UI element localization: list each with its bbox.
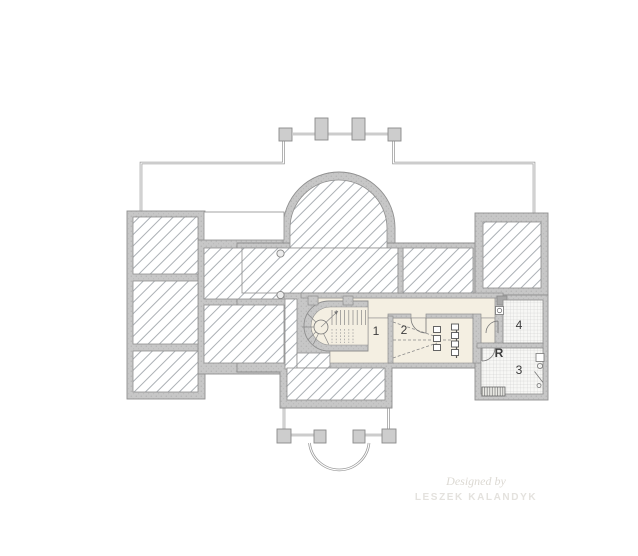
corridor-north-wall: [301, 293, 503, 298]
room-1-label: 1: [373, 325, 380, 337]
room3-north-wall: [477, 343, 543, 348]
central-cell-east: [403, 248, 473, 293]
below-stair-cell: [297, 353, 330, 368]
room3-sink: [536, 354, 544, 362]
room-2-label: 2: [401, 324, 408, 336]
watermark-name-line: LESZEK KALANDYK: [398, 492, 554, 503]
room4-fixture: [496, 307, 504, 315]
stair-pilaster-2: [343, 296, 353, 305]
room-4-label: 4: [516, 319, 523, 331]
top-portico-pillars: [279, 118, 401, 141]
room-3-label: 3: [516, 364, 523, 376]
chairs-left: [434, 327, 441, 351]
watermark-script-line: Designed by: [398, 474, 554, 489]
floor-plan-canvas: 1 2 4 R 3 Designed by LESZEK KALANDYK: [0, 0, 638, 556]
room2-north-wall-b: [426, 314, 473, 318]
portico-arc: [310, 443, 370, 470]
column-2: [277, 291, 284, 298]
top-right-cell: [483, 222, 541, 288]
left-wing-cell-1: [133, 217, 198, 274]
room4-tile-floor: [503, 300, 543, 343]
designer-watermark: Designed by LESZEK KALANDYK: [398, 474, 554, 503]
left-wing-cell-2: [133, 281, 198, 344]
central-strip: [285, 299, 297, 369]
column-1: [277, 250, 284, 257]
room-r-label: R: [495, 347, 504, 359]
central-cell-west: [242, 248, 398, 293]
open-terrace-cell: [204, 212, 284, 240]
terrace-divider-wall: [398, 248, 403, 293]
mid-left-cell-2: [204, 305, 284, 363]
room3-radiator: [482, 387, 505, 396]
room2-west-wall: [388, 316, 393, 363]
room2-east-wall: [473, 314, 481, 363]
stair-pilaster-1: [308, 296, 318, 305]
south-bay-cell: [287, 368, 385, 400]
stair-floor: [311, 307, 368, 345]
left-wing-cell-3: [133, 351, 198, 392]
floor-plan-drawing: [0, 0, 638, 556]
